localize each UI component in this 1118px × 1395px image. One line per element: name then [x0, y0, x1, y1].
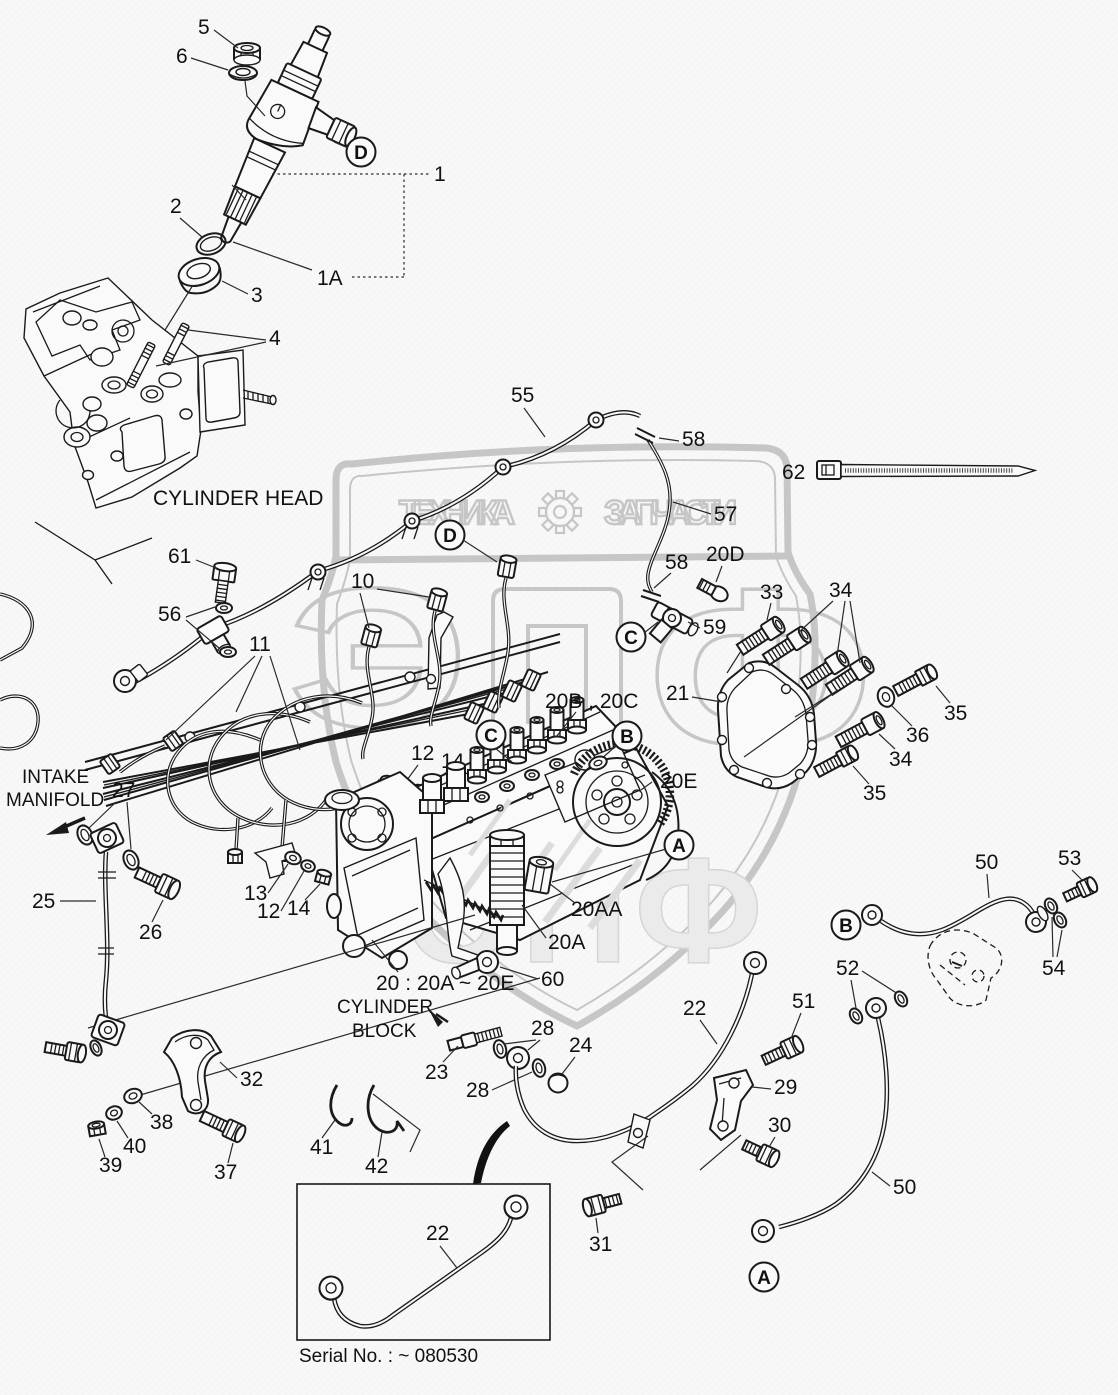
svg-text:23: 23: [425, 1061, 448, 1084]
svg-text:CYLINDER: CYLINDER: [337, 997, 433, 1018]
svg-text:32: 32: [240, 1068, 263, 1091]
svg-text:35: 35: [944, 702, 967, 725]
svg-text:BLOCK: BLOCK: [352, 1021, 417, 1042]
svg-text:4: 4: [269, 327, 281, 350]
svg-text:28: 28: [466, 1079, 489, 1102]
svg-text:5: 5: [198, 16, 210, 39]
svg-text:50: 50: [893, 1176, 916, 1199]
svg-text:58: 58: [682, 428, 705, 451]
svg-text:10: 10: [351, 570, 374, 593]
svg-text:12: 12: [257, 900, 280, 923]
svg-text:62: 62: [782, 461, 805, 484]
svg-text:1A: 1A: [317, 267, 343, 290]
svg-text:52: 52: [836, 957, 859, 980]
svg-text:50: 50: [975, 851, 998, 874]
svg-text:MANIFOLD: MANIFOLD: [6, 790, 104, 811]
svg-text:38: 38: [150, 1111, 173, 1134]
svg-text:57: 57: [714, 503, 737, 526]
svg-text:27: 27: [112, 779, 135, 802]
svg-text:59: 59: [703, 616, 726, 639]
svg-text:Serial No. : ~ 080530: Serial No. : ~ 080530: [299, 1346, 478, 1367]
svg-text:C: C: [624, 628, 638, 649]
svg-text:28: 28: [531, 1017, 554, 1040]
svg-text:11: 11: [249, 633, 271, 656]
svg-text:29: 29: [774, 1076, 797, 1099]
svg-text:51: 51: [792, 990, 815, 1013]
svg-text:D: D: [354, 143, 368, 164]
svg-text:20E: 20E: [660, 770, 697, 793]
svg-text:33: 33: [760, 581, 783, 604]
svg-text:54: 54: [1042, 957, 1066, 980]
svg-text:42: 42: [365, 1155, 388, 1178]
svg-text:41: 41: [310, 1136, 333, 1159]
svg-text:31: 31: [589, 1233, 612, 1256]
svg-text:35: 35: [863, 782, 886, 805]
svg-text:B: B: [620, 727, 634, 748]
svg-text:20B , 20C: 20B , 20C: [545, 690, 638, 713]
svg-text:55: 55: [511, 384, 534, 407]
svg-text:22: 22: [426, 1222, 449, 1245]
svg-text:39: 39: [99, 1154, 122, 1177]
svg-text:20D: 20D: [706, 543, 745, 566]
svg-text:12: 12: [411, 742, 434, 765]
svg-text:INTAKE: INTAKE: [22, 767, 89, 788]
svg-text:25: 25: [32, 890, 55, 913]
svg-text:60: 60: [541, 968, 564, 991]
svg-text:22: 22: [683, 997, 706, 1020]
svg-text:36: 36: [906, 724, 929, 747]
svg-text:26: 26: [139, 921, 162, 944]
svg-text:53: 53: [1058, 847, 1081, 870]
svg-text:D: D: [443, 526, 457, 547]
svg-text:34: 34: [889, 748, 913, 771]
svg-text:40: 40: [123, 1135, 146, 1158]
svg-text:30: 30: [768, 1114, 791, 1137]
svg-text:61: 61: [168, 545, 191, 568]
svg-text:6: 6: [176, 45, 188, 68]
svg-text:34: 34: [829, 579, 853, 602]
svg-text:24: 24: [569, 1034, 593, 1057]
svg-text:3: 3: [251, 284, 263, 307]
svg-text:A: A: [757, 1268, 771, 1289]
svg-text:2: 2: [170, 195, 182, 218]
svg-text:1: 1: [434, 163, 446, 186]
svg-text:14: 14: [287, 897, 311, 920]
svg-text:CYLINDER HEAD: CYLINDER HEAD: [153, 487, 323, 510]
svg-text:56: 56: [158, 603, 181, 626]
svg-text:21: 21: [666, 682, 689, 705]
svg-text:37: 37: [214, 1161, 237, 1184]
svg-text:20A: 20A: [548, 931, 585, 954]
svg-text:58: 58: [665, 551, 688, 574]
svg-text:20AA: 20AA: [571, 898, 622, 921]
svg-text:C: C: [484, 726, 498, 747]
svg-text:B: B: [839, 916, 853, 937]
svg-text:A: A: [672, 836, 686, 857]
